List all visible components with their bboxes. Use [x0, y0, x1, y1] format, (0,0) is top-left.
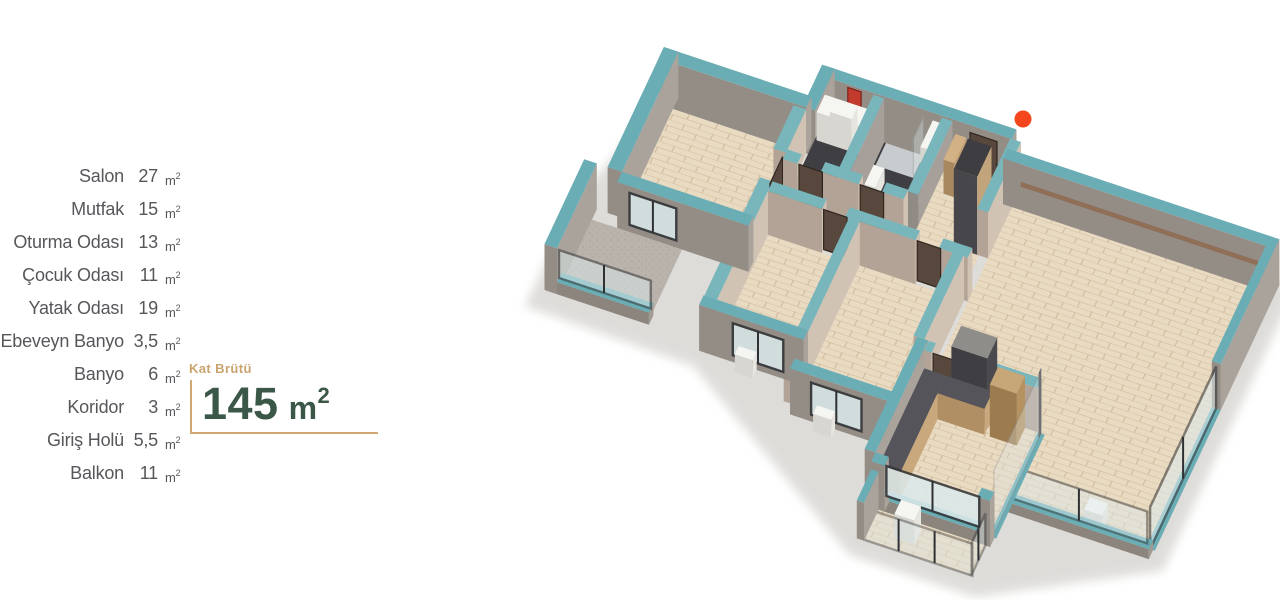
floor-plan-3d-render — [0, 0, 1280, 600]
location-marker-dot — [1015, 111, 1032, 128]
floor-plan-sheet: { "colors": { "accent_teal": "#6badb5", … — [0, 0, 1280, 600]
floor-plan-geometry — [525, 47, 1280, 597]
